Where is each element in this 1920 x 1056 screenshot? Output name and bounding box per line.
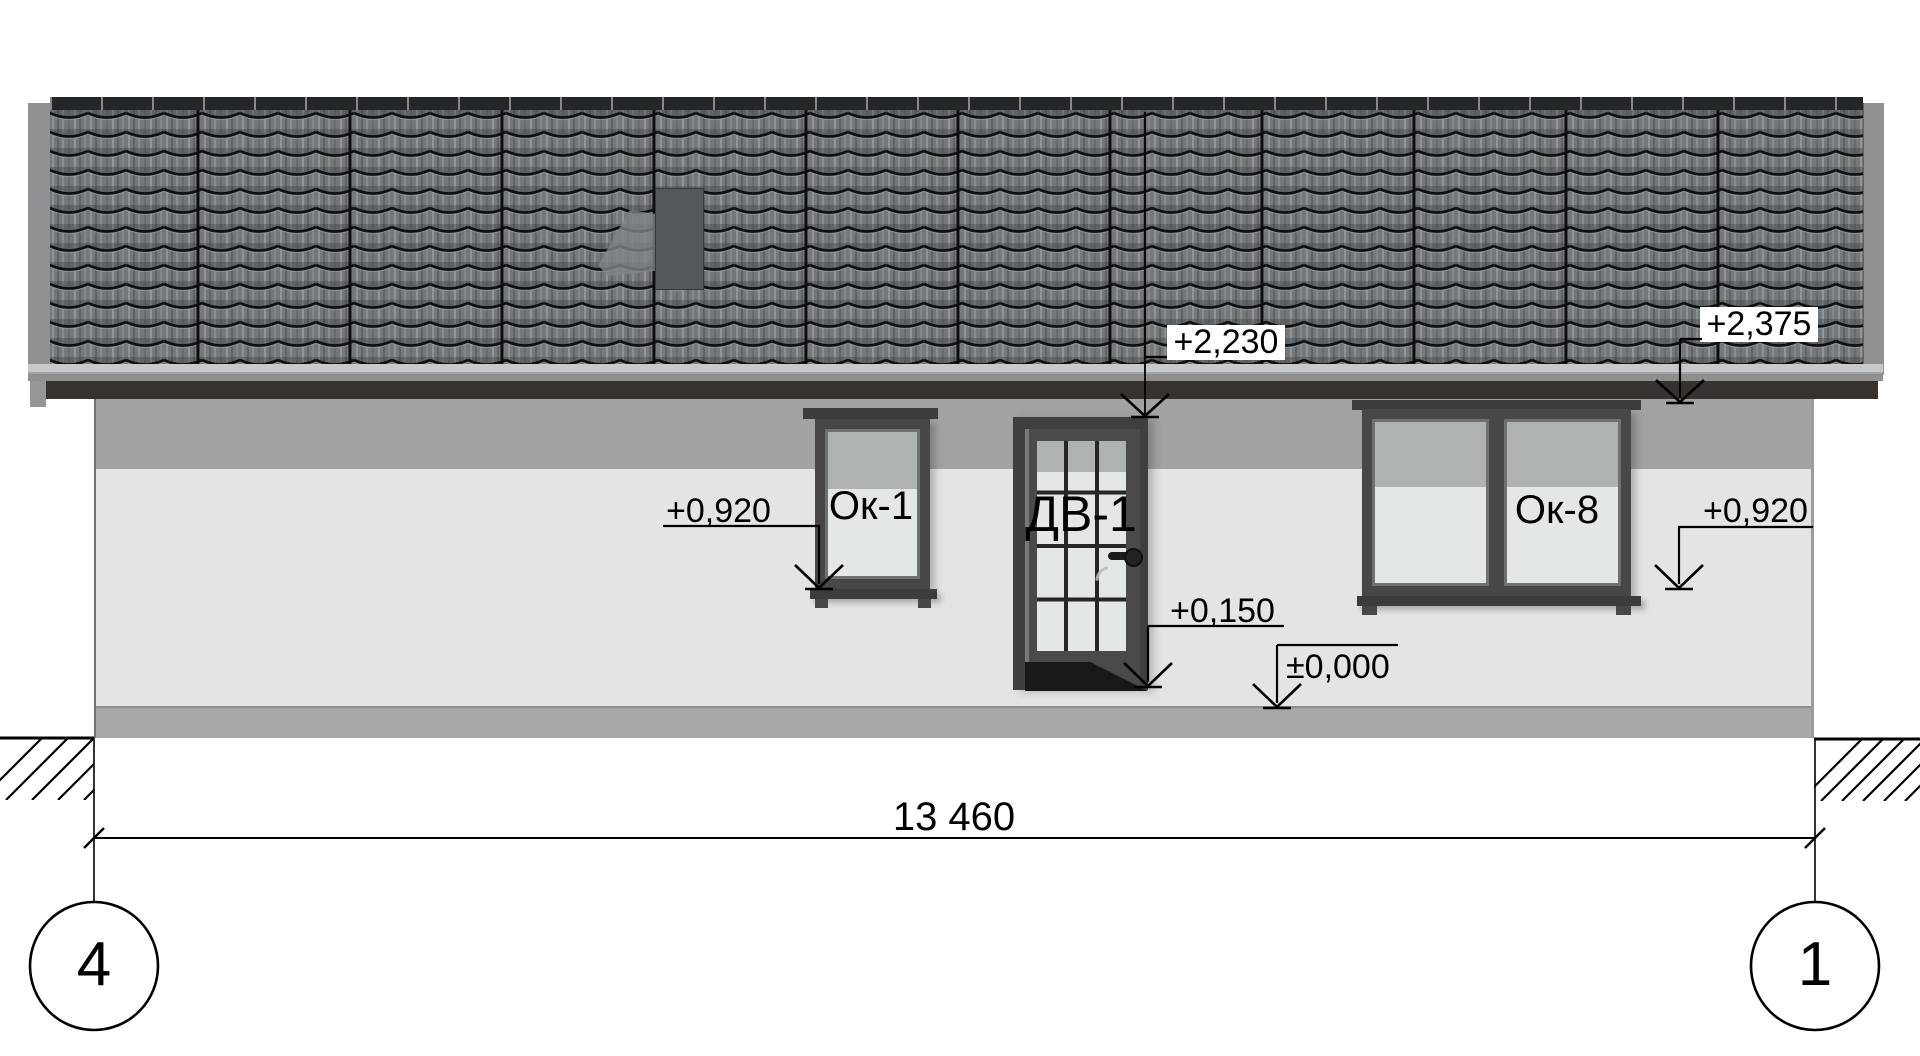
window-right-sash-left xyxy=(1372,419,1489,586)
window-right-tag: Ок-8 xyxy=(1496,492,1618,528)
roof-tile-field xyxy=(50,110,1863,364)
ground-line-right xyxy=(1800,739,1920,801)
door-glass-grid xyxy=(1037,441,1126,651)
roof-barge-board-left xyxy=(28,103,52,364)
mark-sill-left-value: +0,920 xyxy=(666,492,771,531)
roof-ridge-caps xyxy=(50,97,1863,110)
window-left-head-casing xyxy=(803,408,938,419)
window-right-sill-leg xyxy=(1616,606,1631,615)
window-right-sill-leg xyxy=(1362,606,1377,615)
gutter-end-cap xyxy=(30,381,46,407)
roof-barge-board-right xyxy=(1863,103,1884,375)
ground-hatch-right xyxy=(1800,739,1920,801)
mark-zero-value: ±0,000 xyxy=(1286,648,1390,687)
dimension-value: 13 460 xyxy=(844,798,1064,836)
roof-gutter-molding xyxy=(28,364,1883,381)
ground-hatch-left xyxy=(0,738,146,800)
grid-bubble-1-label: 1 xyxy=(1751,902,1879,1030)
roof-fascia xyxy=(42,381,1878,399)
mark-sill-right-value: +0,920 xyxy=(1703,492,1808,531)
window-left-sill-leg xyxy=(815,599,828,608)
door-handle-rose xyxy=(1124,548,1143,567)
mark-eave-value: +2,375 xyxy=(1700,307,1818,342)
window-left-sill xyxy=(810,589,937,599)
window-right-sill xyxy=(1357,596,1641,606)
elevation-drawing: Ок-1 ДВ-1 Ок-8 +2,230 +2,375 +0,920 +0,1… xyxy=(0,0,1920,1056)
mark-door-head-value: +2,230 xyxy=(1167,325,1285,360)
window-left-tag: Ок-1 xyxy=(810,488,932,524)
door-tag: ДВ-1 xyxy=(1018,492,1144,536)
window-left-sill-leg xyxy=(918,599,931,608)
ground-line-left xyxy=(0,738,146,800)
grid-bubble-4-label: 4 xyxy=(30,902,158,1030)
chimney xyxy=(655,188,704,290)
wall-plinth xyxy=(96,706,1811,738)
mark-threshold-value: +0,150 xyxy=(1170,592,1275,631)
